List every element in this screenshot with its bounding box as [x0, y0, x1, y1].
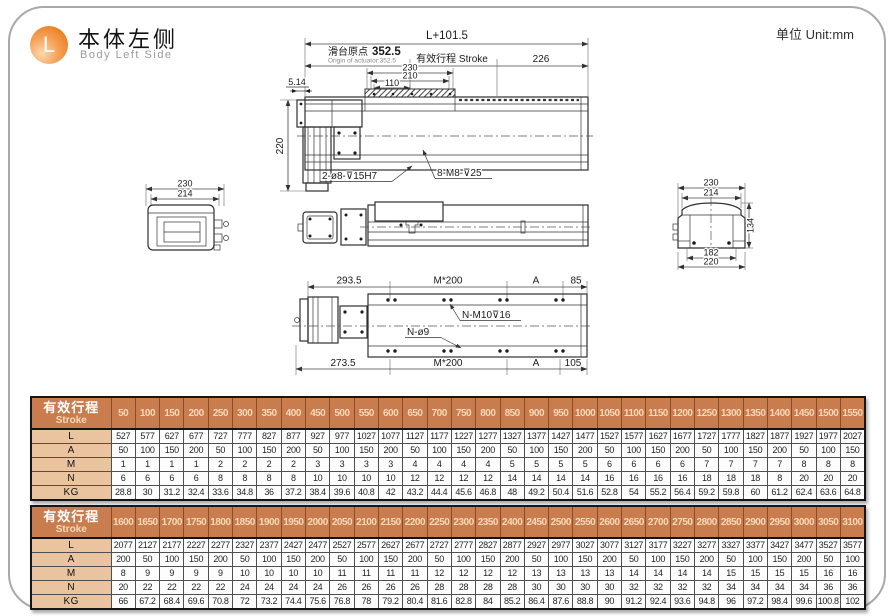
table-cell: 3577	[840, 538, 865, 553]
table-cell: 62.4	[792, 486, 816, 501]
table-cell: 20	[111, 581, 135, 595]
table-cell: 1077	[378, 429, 402, 444]
table-cell: 94.8	[695, 595, 719, 610]
table-cell: 200	[695, 553, 719, 567]
table-cell: 150	[160, 444, 184, 458]
table-cell: 12	[476, 472, 500, 486]
table-cell: 102	[840, 595, 865, 610]
table-cell: 13	[524, 567, 548, 581]
table-cell: 75.6	[306, 595, 330, 610]
table-cell: 10	[378, 472, 402, 486]
table-cell: 46.8	[476, 486, 500, 501]
table-cell: 22	[135, 581, 159, 595]
table-cell: 150	[549, 444, 573, 458]
dim-230-right: 230	[703, 178, 718, 188]
table-row-L: L207721272177222722772327237724272477252…	[31, 538, 865, 553]
table-cell: 34	[767, 581, 791, 595]
top-side-view: L+101.5 滑台原点 352.5 Origin of actuator:35…	[275, 30, 593, 191]
hole-callout-label: 2-ø8-⊽15H7	[322, 171, 378, 182]
table-cell: 50	[403, 444, 427, 458]
table-cell: 50	[208, 444, 232, 458]
table-cell: 8	[767, 472, 791, 486]
table-cell: 2	[281, 458, 305, 472]
stroke-value-header: 2000	[306, 506, 330, 538]
table-cell: 100	[719, 444, 743, 458]
table-cell: 16	[646, 472, 670, 486]
table-cell: 87.6	[549, 595, 573, 610]
stroke-value-header: 2100	[354, 506, 378, 538]
table-cell: 1877	[767, 429, 791, 444]
table-cell: 200	[500, 553, 524, 567]
table-cell: 16	[597, 472, 621, 486]
table-cell: 12	[451, 567, 475, 581]
table-cell: 67.2	[135, 595, 159, 610]
table-cell: 9	[160, 567, 184, 581]
table-cell: 1827	[743, 429, 767, 444]
table-cell: 22	[160, 581, 184, 595]
stroke-value-header: 1450	[792, 397, 816, 429]
table-cell: 30	[549, 581, 573, 595]
table-cell: 26	[330, 581, 354, 595]
table-cell: 72	[233, 595, 257, 610]
table-cell: 61.2	[767, 486, 791, 501]
table-cell: 877	[281, 429, 305, 444]
origin-label-en: Origin of actuator:352.5	[328, 58, 396, 65]
table-cell: 7	[767, 458, 791, 472]
table-cell: 50	[622, 553, 646, 567]
table-row-A: A501001502005010015020050100150200501001…	[31, 444, 865, 458]
table-cell: 18	[719, 472, 743, 486]
table-cell: 11	[330, 567, 354, 581]
table-cell: 6	[622, 458, 646, 472]
stroke-value-header: 900	[524, 397, 548, 429]
table-cell: 81.6	[427, 595, 451, 610]
row-label: L	[31, 538, 111, 553]
table-cell: 14	[573, 472, 597, 486]
table-cell: 91.2	[622, 595, 646, 610]
stroke-value-header: 2150	[378, 506, 402, 538]
stroke-value-header: 1100	[622, 397, 646, 429]
stroke-value-header: 1050	[597, 397, 621, 429]
stroke-value-header: 1300	[719, 397, 743, 429]
table-cell: 20	[792, 472, 816, 486]
table-cell: 82.8	[451, 595, 475, 610]
stroke-value-header: 2450	[524, 506, 548, 538]
table-cell: 32	[670, 581, 694, 595]
table-cell: 31.2	[160, 486, 184, 501]
stroke-value-header: 1700	[160, 506, 184, 538]
table-cell: 8	[792, 458, 816, 472]
table-cell: 150	[573, 553, 597, 567]
table-cell: 8	[111, 567, 135, 581]
stroke-value-header: 2700	[646, 506, 670, 538]
table-cell: 51.6	[573, 486, 597, 501]
table-cell: 100	[549, 553, 573, 567]
carriage-hatched	[365, 89, 455, 97]
table-cell: 32	[646, 581, 670, 595]
table-cell: 100	[135, 444, 159, 458]
table-cell: 150	[184, 553, 208, 567]
table-cell: 55.2	[646, 486, 670, 501]
table-cell: 5	[500, 458, 524, 472]
table-cell: 48	[500, 486, 524, 501]
table-cell: 1	[135, 458, 159, 472]
stroke-value-header: 2550	[573, 506, 597, 538]
stroke-header-label: 有效行程Stroke	[31, 506, 111, 538]
table-cell: 2377	[257, 538, 281, 553]
table-cell: 15	[719, 567, 743, 581]
table-cell: 32	[622, 581, 646, 595]
table-cell: 12	[500, 567, 524, 581]
table-cell: 11	[354, 567, 378, 581]
stroke-value-header: 1400	[767, 397, 791, 429]
table-cell: 8	[840, 458, 865, 472]
table-cell: 80.4	[403, 595, 427, 610]
table-cell: 2427	[281, 538, 305, 553]
table-cell: 50	[111, 444, 135, 458]
table-cell: 76.8	[330, 595, 354, 610]
table-cell: 10	[354, 472, 378, 486]
table-cell: 28	[476, 581, 500, 595]
table-cell: 36	[840, 581, 865, 595]
stroke-value-header: 2300	[451, 506, 475, 538]
table-cell: 1727	[695, 429, 719, 444]
mounting-holes-bottom	[386, 349, 564, 352]
table-cell: 100	[646, 553, 670, 567]
table-cell: 1927	[792, 429, 816, 444]
table-cell: 68.4	[160, 595, 184, 610]
table-cell: 69.6	[184, 595, 208, 610]
stroke-value-header: 1250	[695, 397, 719, 429]
table-cell: 85.2	[500, 595, 524, 610]
table-cell: 1	[184, 458, 208, 472]
table-cell: 2977	[549, 538, 573, 553]
table-cell: 70.8	[208, 595, 232, 610]
table-cell: 26	[378, 581, 402, 595]
table-cell: 22	[184, 581, 208, 595]
table-cell: 3027	[573, 538, 597, 553]
table-cell: 4	[451, 458, 475, 472]
table-cell: 14	[549, 472, 573, 486]
table-cell: 150	[378, 553, 402, 567]
table-cell: 1527	[597, 429, 621, 444]
table-cell: 50	[816, 553, 840, 567]
table-cell: 9	[184, 567, 208, 581]
table-cell: 50	[597, 444, 621, 458]
table-cell: 977	[330, 429, 354, 444]
table-cell: 50	[330, 553, 354, 567]
row-label: N	[31, 581, 111, 595]
table-cell: 100	[160, 553, 184, 567]
table-cell: 200	[792, 553, 816, 567]
table-cell: 10	[330, 472, 354, 486]
table-cell: 24	[281, 581, 305, 595]
stroke-value-header: 1150	[646, 397, 670, 429]
carriage-profile	[375, 202, 443, 221]
table-cell: 50	[695, 444, 719, 458]
row-label: M	[31, 458, 111, 472]
dim-214-right: 214	[703, 188, 718, 198]
table-cell: 3	[306, 458, 330, 472]
table-cell: 30	[573, 581, 597, 595]
table-cell: 200	[306, 553, 330, 567]
table-cell: 200	[403, 553, 427, 567]
table-cell: 1427	[549, 429, 573, 444]
stroke-value-header: 2900	[743, 506, 767, 538]
table-cell: 10	[281, 567, 305, 581]
table-cell: 52.8	[597, 486, 621, 501]
table-cell: 50	[135, 553, 159, 567]
stroke-value-header: 150	[160, 397, 184, 429]
table-cell: 2677	[403, 538, 427, 553]
dim-85: 85	[570, 276, 582, 287]
origin-label-cn: 滑台原点	[328, 45, 368, 58]
table-cell: 12	[451, 472, 475, 486]
table-cell: 4	[403, 458, 427, 472]
table-cell: 150	[476, 553, 500, 567]
table-cell: 54	[622, 486, 646, 501]
table-cell: 38.4	[306, 486, 330, 501]
table-cell: 200	[597, 553, 621, 567]
stroke-value-header: 700	[427, 397, 451, 429]
table-cell: 9	[135, 567, 159, 581]
table-cell: 39.6	[330, 486, 354, 501]
right-end-view: 230 214 134 182 220	[673, 178, 756, 271]
stroke-value-header: 3050	[816, 506, 840, 538]
table-cell: 6	[111, 472, 135, 486]
table-cell: 93.6	[670, 595, 694, 610]
table-cell: 34.8	[233, 486, 257, 501]
table-cell: 1	[111, 458, 135, 472]
table-cell: 99.6	[792, 595, 816, 610]
table-cell: 3277	[695, 538, 719, 553]
table-cell: 10	[257, 567, 281, 581]
origin-value: 352.5	[372, 46, 401, 58]
table-cell: 28.8	[111, 486, 135, 501]
dim-220-right: 220	[703, 257, 718, 267]
table-cell: 90	[597, 595, 621, 610]
dim-total-length: L+101.5	[426, 30, 468, 42]
dim-210: 210	[402, 71, 417, 81]
stroke-value-header: 2800	[695, 506, 719, 538]
table-cell: 150	[767, 553, 791, 567]
table-cell: 98.4	[767, 595, 791, 610]
table-cell: 100	[743, 553, 767, 567]
table-cell: 50	[500, 444, 524, 458]
stroke-value-header: 1800	[208, 506, 232, 538]
stroke-value-header: 3100	[840, 506, 865, 538]
stroke-dim-label: 有效行程 Stroke	[416, 52, 488, 65]
table-cell: 200	[767, 444, 791, 458]
table-cell: 727	[208, 429, 232, 444]
left-end-view: 230 214	[146, 179, 229, 251]
table-cell: 2	[257, 458, 281, 472]
table-cell: 16	[840, 567, 865, 581]
table-cell: 10	[233, 567, 257, 581]
row-label: KG	[31, 486, 111, 501]
stroke-value-header: 1600	[111, 506, 135, 538]
table-cell: 150	[257, 444, 281, 458]
table-cell: 18	[695, 472, 719, 486]
table-cell: 200	[281, 444, 305, 458]
table-cell: 20	[840, 472, 865, 486]
table-cell: 24	[257, 581, 281, 595]
table-cell: 97.2	[743, 595, 767, 610]
table-cell: 66	[111, 595, 135, 610]
table-cell: 12	[427, 567, 451, 581]
table-cell: 79.2	[378, 595, 402, 610]
table-cell: 1627	[646, 429, 670, 444]
table-cell: 50	[524, 553, 548, 567]
stroke-value-header: 1750	[184, 506, 208, 538]
table-cell: 150	[354, 444, 378, 458]
table-cell: 150	[743, 444, 767, 458]
stroke-value-header: 2600	[597, 506, 621, 538]
stroke-value-header: 2050	[330, 506, 354, 538]
table-cell: 14	[695, 567, 719, 581]
stroke-value-header: 2650	[622, 506, 646, 538]
table-row-M: M1111222233334444555566667777888	[31, 458, 865, 472]
table-cell: 16	[816, 567, 840, 581]
table-cell: 37.2	[281, 486, 305, 501]
table-cell: 1977	[816, 429, 840, 444]
stroke-value-header: 1650	[135, 506, 159, 538]
dim-214-left: 214	[177, 189, 192, 199]
table-cell: 2027	[840, 429, 865, 444]
table-cell: 16	[622, 472, 646, 486]
table-cell: 49.2	[524, 486, 548, 501]
table-cell: 200	[208, 553, 232, 567]
table-cell: 36	[816, 581, 840, 595]
table-row-KG: KG28.83031.232.433.634.83637.238.439.640…	[31, 486, 865, 501]
table-cell: 100	[622, 444, 646, 458]
table-cell: 22	[208, 581, 232, 595]
row-label: L	[31, 429, 111, 444]
table-cell: 200	[184, 444, 208, 458]
table-cell: 150	[451, 444, 475, 458]
stroke-value-header: 1850	[233, 506, 257, 538]
table-cell: 15	[767, 567, 791, 581]
stroke-value-header: 100	[135, 397, 159, 429]
table-cell: 1027	[354, 429, 378, 444]
table-cell: 14	[622, 567, 646, 581]
table-cell: 96	[719, 595, 743, 610]
table-cell: 14	[646, 567, 670, 581]
table-cell: 2227	[184, 538, 208, 553]
stroke-value-header: 450	[306, 397, 330, 429]
stroke-value-header: 1350	[743, 397, 767, 429]
table-cell: 12	[476, 567, 500, 581]
dim-5-14: 5.14	[288, 77, 306, 87]
table-cell: 827	[257, 429, 281, 444]
table-cell: 86.4	[524, 595, 548, 610]
table-cell: 6	[597, 458, 621, 472]
table-cell: 24	[233, 581, 257, 595]
table-cell: 6	[646, 458, 670, 472]
table-cell: 9	[208, 567, 232, 581]
table-cell: 3527	[816, 538, 840, 553]
technical-drawing: L+101.5 滑台原点 352.5 Origin of actuator:35…	[0, 0, 894, 392]
table-cell: 50.4	[549, 486, 573, 501]
table-cell: 7	[719, 458, 743, 472]
table-cell: 1327	[500, 429, 524, 444]
table-cell: 59.2	[695, 486, 719, 501]
table-cell: 30	[524, 581, 548, 595]
center-side-profile	[298, 202, 592, 246]
table-cell: 8	[233, 472, 257, 486]
table-cell: 8	[281, 472, 305, 486]
table-cell: 627	[160, 429, 184, 444]
table-cell: 6	[670, 458, 694, 472]
table-cell: 88.8	[573, 595, 597, 610]
table-cell: 3077	[597, 538, 621, 553]
table-cell: 8	[257, 472, 281, 486]
stroke-value-header: 400	[281, 397, 305, 429]
table-cell: 2577	[354, 538, 378, 553]
table-cell: 527	[111, 429, 135, 444]
table-cell: 32.4	[184, 486, 208, 501]
table-cell: 3177	[646, 538, 670, 553]
dim-110: 110	[385, 78, 399, 88]
table-cell: 5	[573, 458, 597, 472]
stroke-value-header: 600	[378, 397, 402, 429]
table-cell: 84	[476, 595, 500, 610]
table-cell: 150	[840, 444, 865, 458]
stroke-value-header: 2850	[719, 506, 743, 538]
stroke-value-header: 3000	[792, 506, 816, 538]
table-cell: 1477	[573, 429, 597, 444]
table-cell: 24	[306, 581, 330, 595]
dim-226: 226	[533, 54, 550, 65]
table-cell: 150	[646, 444, 670, 458]
stroke-value-header: 550	[354, 397, 378, 429]
table-cell: 12	[403, 472, 427, 486]
stroke-value-header: 300	[233, 397, 257, 429]
table-cell: 5	[549, 458, 573, 472]
bottom-plan-view: 293.5 M*200 A 85 N-M10⊽16	[292, 276, 592, 376]
dim-273-5: 273.5	[330, 358, 355, 369]
table-cell: 200	[573, 444, 597, 458]
thread-callout-label: N-M10⊽16	[462, 310, 511, 321]
table-cell: 100	[354, 553, 378, 567]
table-cell: 8	[816, 458, 840, 472]
row-label: A	[31, 553, 111, 567]
stroke-value-header: 2250	[427, 506, 451, 538]
table-cell: 2	[233, 458, 257, 472]
stroke-value-header: 200	[184, 397, 208, 429]
table-cell: 100.8	[816, 595, 840, 610]
table-cell: 3	[354, 458, 378, 472]
table-cell: 12	[427, 472, 451, 486]
table-cell: 74.4	[281, 595, 305, 610]
table-cell: 2727	[427, 538, 451, 553]
table-cell: 5	[524, 458, 548, 472]
table-cell: 73.2	[257, 595, 281, 610]
stroke-header-label: 有效行程Stroke	[31, 397, 111, 429]
table-cell: 3227	[670, 538, 694, 553]
stroke-value-header: 2200	[403, 506, 427, 538]
table-cell: 6	[135, 472, 159, 486]
mounting-holes-top	[386, 298, 564, 301]
row-label: M	[31, 567, 111, 581]
table-row-M: M899991010101011111111121212121313131314…	[31, 567, 865, 581]
table-cell: 3427	[767, 538, 791, 553]
table-cell: 34	[743, 581, 767, 595]
table-cell: 777	[233, 429, 257, 444]
stroke-value-header: 50	[111, 397, 135, 429]
table-cell: 30	[597, 581, 621, 595]
table-cell: 3327	[719, 538, 743, 553]
